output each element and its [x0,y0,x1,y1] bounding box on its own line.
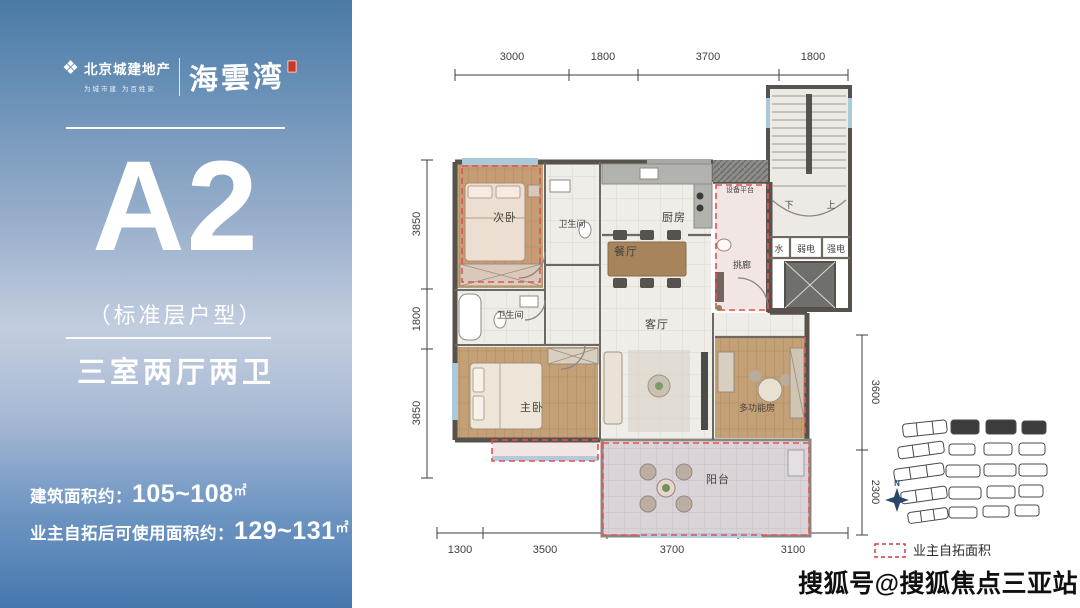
svg-text:3500: 3500 [533,544,557,556]
stair-up-label: 上 [826,200,835,210]
company-slogan: 为城市建 为百姓家 [84,83,171,93]
strong-power-label: 强电 [827,243,845,254]
dimension-top: 3000 1800 3700 1800 [455,51,848,81]
red-seal-icon [287,60,297,73]
brand-divider [179,58,180,96]
svg-text:1800: 1800 [801,51,825,63]
svg-text:3100: 3100 [781,544,805,556]
svg-text:3850: 3850 [411,212,423,236]
stair-down-label: 下 [784,200,793,210]
company-block: 北京城建地产 为城市建 为百姓家 [84,58,171,93]
built-area-label: 建筑面积约： [30,488,132,506]
brand-row: ❖ 北京城建地产 为城市建 为百姓家 海雲湾 [62,58,297,98]
room-label-living: 客厅 [645,317,669,331]
compass-label: N [894,479,900,488]
built-area-value: 105~108 [132,480,234,508]
usable-area-unit: ㎡ [336,520,349,535]
compass-icon: N [885,479,909,512]
svg-text:3700: 3700 [696,51,720,63]
room-label-master: 主卧 [520,401,544,414]
svg-text:2300: 2300 [869,480,881,504]
room-label-bath-lower: 卫生间 [496,309,523,320]
legend: 业主自拓面积 [875,543,991,558]
unit-code: A2 [0,132,352,282]
usable-area-value: 129~131 [234,517,336,545]
company-logo-icon: ❖ [62,58,79,80]
weak-power-label: 弱电 [797,243,815,254]
room-label-kitchen: 厨房 [662,211,686,224]
floorplan-svg: 3000 1800 3700 1800 1300 3500 3700 3100 … [352,0,1080,608]
project-name: 海雲湾 [188,56,285,99]
svg-text:3850: 3850 [411,401,423,425]
room-label-corridor: 挑廊 [733,259,751,270]
svg-text:3600: 3600 [869,380,881,404]
floorplan-poster: ❖ 北京城建地产 为城市建 为百姓家 海雲湾 A2 （标准层户型） 三室两厅两卫… [0,0,1080,608]
unit-subtitle: （标准层户型） [0,298,352,330]
unit-layout: 三室两厅两卫 [0,349,352,391]
water-label: 水 [774,243,783,254]
room-label-bedroom2: 次卧 [493,210,517,224]
dimension-right: 3600 2300 [856,335,881,535]
divider-line-mid [66,337,271,339]
room-label-equipment: 设备平台 [726,185,754,194]
equipment-platform-hatch [713,160,768,182]
room-label-balcony: 阳台 [706,472,730,486]
usable-area-line: 业主自拓后可使用面积约：129~131㎡ [30,517,340,546]
company-name: 北京城建地产 [84,58,171,78]
svg-text:1800: 1800 [411,307,423,331]
svg-text:1300: 1300 [448,544,472,556]
left-info-panel: ❖ 北京城建地产 为城市建 为百姓家 海雲湾 A2 （标准层户型） 三室两厅两卫… [0,0,352,608]
dimension-left: 3850 1800 3850 [411,160,433,478]
floorplan-area: 3000 1800 3700 1800 1300 3500 3700 3100 … [352,0,1080,608]
site-map [893,420,1047,524]
usable-area-label: 业主自拓后可使用面积约： [30,525,234,543]
room-label-multi: 多功能房 [739,402,775,413]
area-info: 建筑面积约：105~108㎡ 业主自拓后可使用面积约：129~131㎡ [30,480,340,554]
divider-line-top [66,127,285,129]
built-area-line: 建筑面积约：105~108㎡ [30,480,340,509]
svg-text:1800: 1800 [591,51,615,63]
legend-self-expand-label: 业主自拓面积 [913,543,991,558]
svg-text:3700: 3700 [660,544,684,556]
room-label-bath-upper: 卫生间 [558,218,585,229]
room-label-dining: 餐厅 [614,244,638,258]
built-area-unit: ㎡ [234,483,247,498]
watermark-text: 搜狐号@搜狐焦点三亚站 [798,564,1078,600]
svg-text:3000: 3000 [500,51,524,63]
